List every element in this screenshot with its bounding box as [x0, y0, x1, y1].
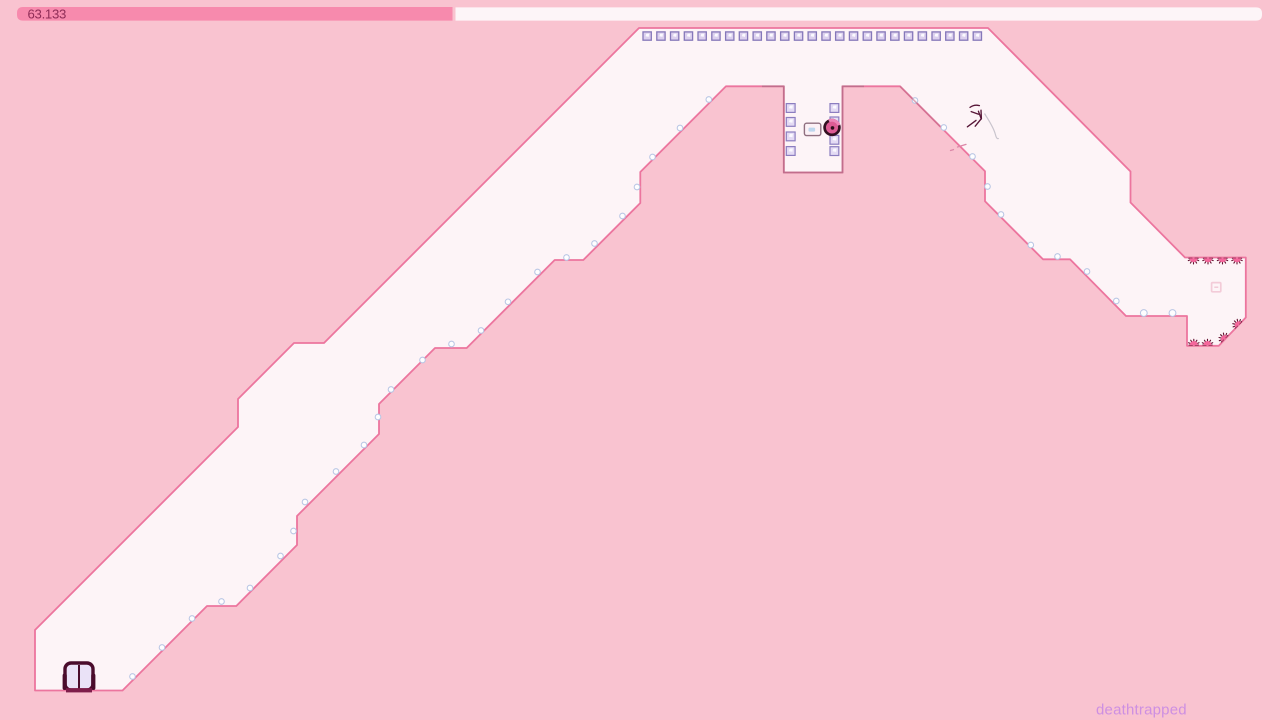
svg-text:deathtrapped: deathtrapped — [1096, 702, 1187, 719]
svg-text:63.133: 63.133 — [28, 7, 67, 22]
